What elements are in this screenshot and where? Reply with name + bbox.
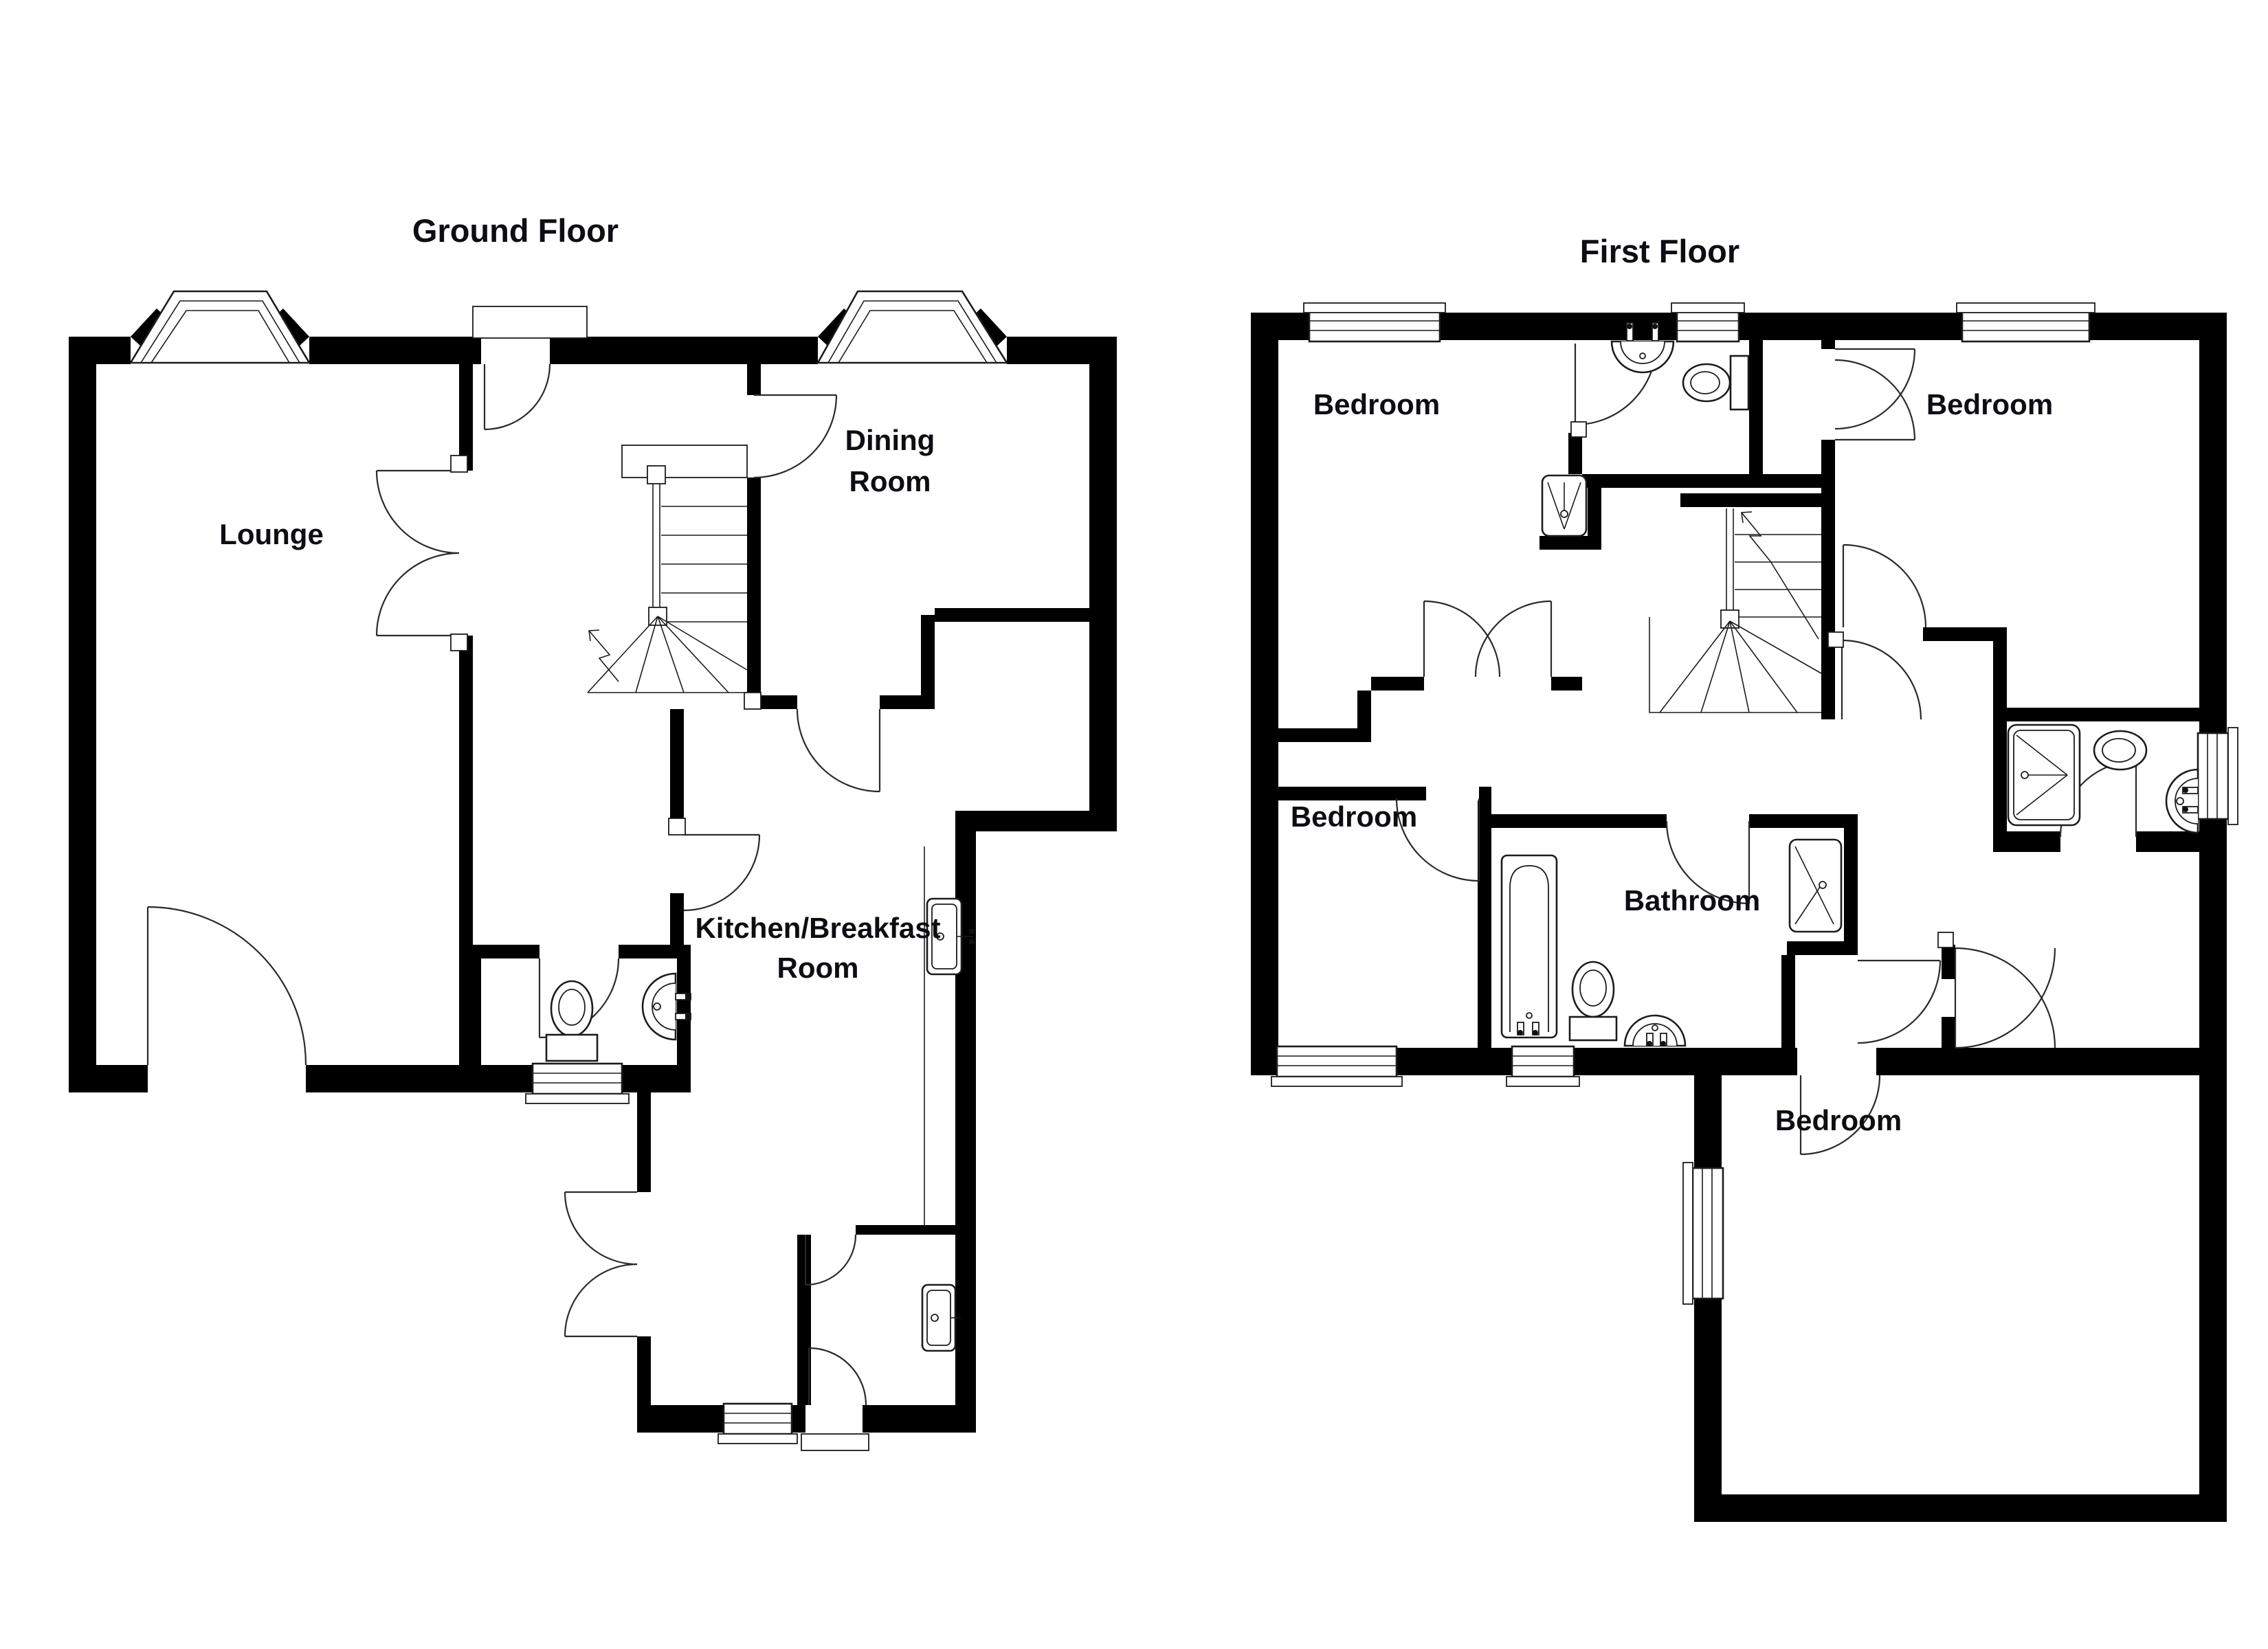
staircase-ground: [588, 445, 747, 693]
toilet-icon: [546, 981, 597, 1061]
window-wc: [526, 1064, 629, 1103]
window-bedroom-front-right: [1957, 303, 2095, 341]
lounge-rear-door: [148, 907, 306, 1065]
floorplan-drawing: Ground Floor: [0, 0, 2268, 1649]
door-jamb: [669, 818, 685, 835]
window-kitchen: [718, 1404, 797, 1444]
room-label-bathroom: Bathroom: [1624, 884, 1760, 917]
stair-arrow-head: [1742, 512, 1752, 523]
toilet-icon: [1570, 962, 1616, 1040]
front-door: [485, 364, 550, 429]
bedroom-front-left-double-doors: [1424, 601, 1551, 677]
window-bedroom-front-left: [1304, 303, 1445, 341]
room-label-lounge: Lounge: [219, 518, 324, 550]
ground-floor-plan: Ground Floor: [69, 212, 1117, 1450]
bay-window-dining: [818, 291, 1007, 363]
stair-landing: [622, 445, 747, 478]
stair-winder-edge: [1649, 617, 1821, 713]
shower-icon: [1790, 840, 1841, 932]
room-label-bedroom-front-right: Bedroom: [1926, 388, 2053, 420]
french-doors: [565, 1192, 637, 1336]
room-label-bedroom-rear: Bedroom: [1775, 1104, 1902, 1136]
lobby-inner-door: [805, 1235, 856, 1285]
room-label-kitchen-2: Room: [777, 952, 859, 984]
room-label-kitchen-1: Kitchen/Breakfast: [695, 912, 940, 944]
lounge-double-doors: [377, 471, 459, 636]
dining-door: [754, 395, 836, 478]
door-jamb: [1571, 422, 1586, 437]
rear-exterior-door: [809, 1348, 866, 1405]
lobby-double-doors: [1955, 948, 2055, 1048]
stair-up-arrow: [589, 631, 619, 682]
door-jamb: [1938, 932, 1953, 947]
window-bedroom-middle: [1271, 1046, 1402, 1086]
floorplan-page: Ground Floor: [0, 0, 2268, 1649]
room-label-bedroom-front-left: Bedroom: [1313, 388, 1440, 420]
room-label-bedroom-middle: Bedroom: [1291, 800, 1417, 833]
door-jamb: [1828, 632, 1843, 647]
sink-icon: [2166, 770, 2198, 833]
window-bathroom: [1507, 1046, 1579, 1086]
door-jamb: [451, 634, 467, 651]
bay-window-lounge: [131, 291, 309, 363]
front-door-step: [473, 306, 587, 338]
toilet-icon: [2094, 731, 2146, 770]
stair-newel: [647, 466, 665, 484]
first-floor-plan: First Floor: [1251, 233, 2238, 1522]
sink-icon: [1625, 1016, 1685, 1046]
kitchen-sink-icon: [922, 1285, 961, 1351]
bedroom-front-right-closet-doors: [1835, 349, 1915, 440]
rear-door-step: [801, 1434, 869, 1450]
toilet-icon: [1683, 356, 1748, 410]
ground-floor-walls: [69, 309, 1117, 1433]
stair-arrow: [1742, 513, 1770, 561]
kitchen-door: [684, 835, 759, 910]
window-bedroom-rear: [1683, 1163, 1723, 1304]
door-jamb: [744, 693, 761, 709]
shower-icon: [1542, 475, 1586, 536]
window-ensuite-right: [2198, 728, 2238, 824]
dining-kitchen-door: [797, 709, 880, 792]
shower-icon: [2008, 725, 2080, 825]
staircase-first: [1649, 508, 1821, 713]
landing-door: [1842, 640, 1921, 719]
door-jamb: [451, 456, 467, 472]
first-floor-title: First Floor: [1580, 233, 1739, 269]
cupboard-door: [1858, 961, 1940, 1043]
room-label-dining-2: Room: [849, 465, 931, 497]
window-landing: [1671, 303, 1744, 341]
bedroom-front-right-door: [1843, 545, 1926, 627]
bath-icon: [1502, 855, 1557, 1037]
ground-floor-title: Ground Floor: [412, 212, 619, 249]
first-floor-walls: [1251, 313, 2227, 1522]
bay-window-frame: [818, 291, 1007, 363]
room-label-dining-1: Dining: [845, 424, 935, 456]
